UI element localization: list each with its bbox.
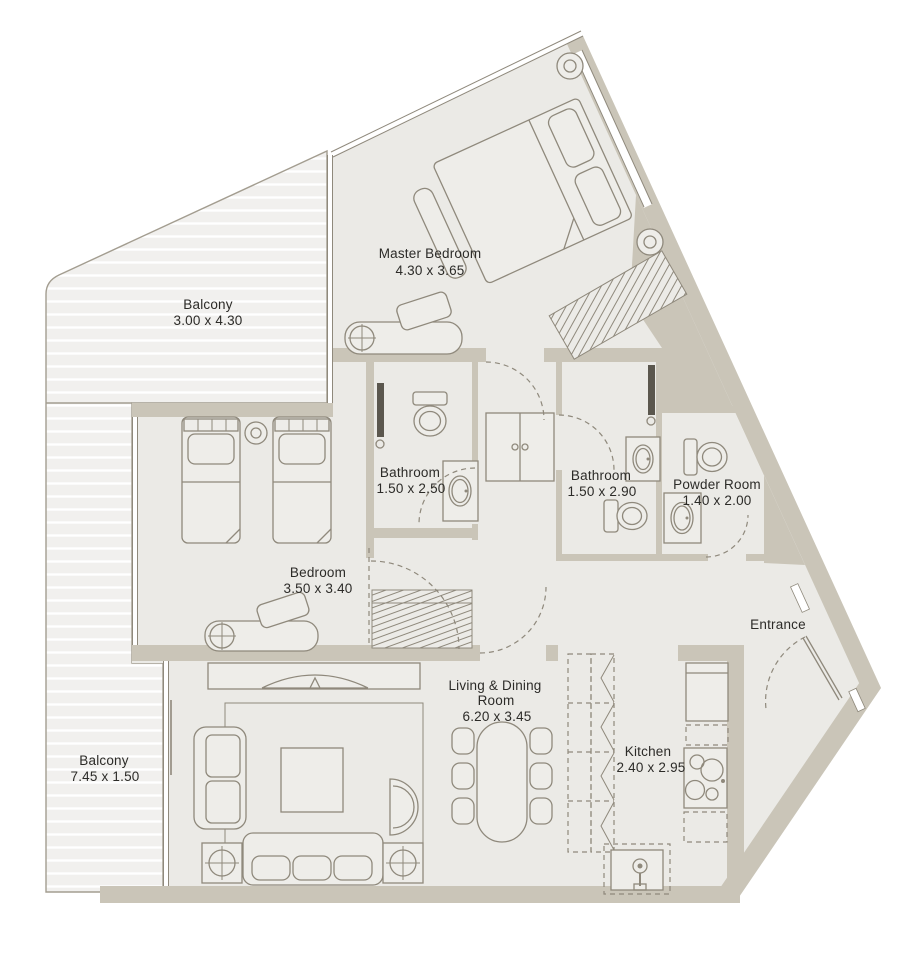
dining-table (477, 722, 527, 842)
powder-room-label: Powder Room (673, 477, 761, 492)
kitchen-sink (604, 844, 670, 894)
entrance-label: Entrance (750, 617, 806, 632)
balcony-top-label: Balcony (183, 297, 232, 312)
master-bedroom-label: Master Bedroom (379, 246, 482, 261)
dining-set (452, 722, 552, 842)
side-table-lamp-2 (383, 843, 423, 883)
hall-closet (486, 413, 554, 481)
vanity-sink (443, 461, 478, 521)
nightstand-lamp (557, 53, 583, 79)
bathroom-2-dims: 1.50 x 2.90 (567, 484, 636, 499)
shower-panel (648, 365, 655, 415)
fridge (686, 663, 728, 721)
balcony-bottom-dims: 7.45 x 1.50 (70, 769, 139, 784)
coffee-table (281, 748, 343, 812)
bathroom-1-dims: 1.50 x 2.50 (376, 481, 445, 496)
living-dining-dims: 6.20 x 3.45 (462, 709, 531, 724)
bedroom-dims: 3.50 x 3.40 (283, 581, 352, 596)
balcony-bottom-label: Balcony (79, 753, 128, 768)
pendant-light (245, 422, 267, 444)
bedroom-label: Bedroom (290, 565, 346, 580)
nightstand-lamp-2 (637, 229, 663, 255)
toilet (604, 500, 647, 532)
dining-chair (530, 728, 552, 754)
dining-chair (530, 763, 552, 789)
dining-chair (452, 763, 474, 789)
shower-panel (377, 383, 384, 437)
sofa-two-seat (194, 727, 246, 829)
dining-chair (530, 798, 552, 824)
bathroom-2-label: Bathroom (571, 468, 631, 483)
floor-plan: Master Bedroom 4.30 x 3.65 Balcony 3.00 … (0, 0, 922, 974)
living-dining-label-2: Room (478, 693, 515, 708)
floor-plan-page: Master Bedroom 4.30 x 3.65 Balcony 3.00 … (0, 0, 922, 974)
powder-room-dims: 1.40 x 2.00 (682, 493, 751, 508)
kitchen-dims: 2.40 x 2.95 (616, 760, 685, 775)
balcony-top-dims: 3.00 x 4.30 (173, 313, 242, 328)
dining-chair (452, 798, 474, 824)
side-table-lamp (202, 843, 242, 883)
master-bedroom-dims: 4.30 x 3.65 (395, 263, 464, 278)
toilet (413, 392, 447, 436)
tv-console (208, 663, 420, 689)
bathroom-1-label: Bathroom (380, 465, 440, 480)
vanity-sink (626, 437, 660, 481)
toilet (684, 439, 727, 475)
living-dining-label-1: Living & Dining (448, 678, 541, 693)
bedroom-wardrobe-hatch (372, 590, 472, 648)
dining-chair (452, 728, 474, 754)
cooktop (684, 748, 727, 808)
twin-bed-2 (273, 417, 331, 543)
sofa-three-seat (243, 833, 383, 885)
kitchen-label: Kitchen (625, 744, 671, 759)
twin-bed-1 (182, 417, 240, 543)
